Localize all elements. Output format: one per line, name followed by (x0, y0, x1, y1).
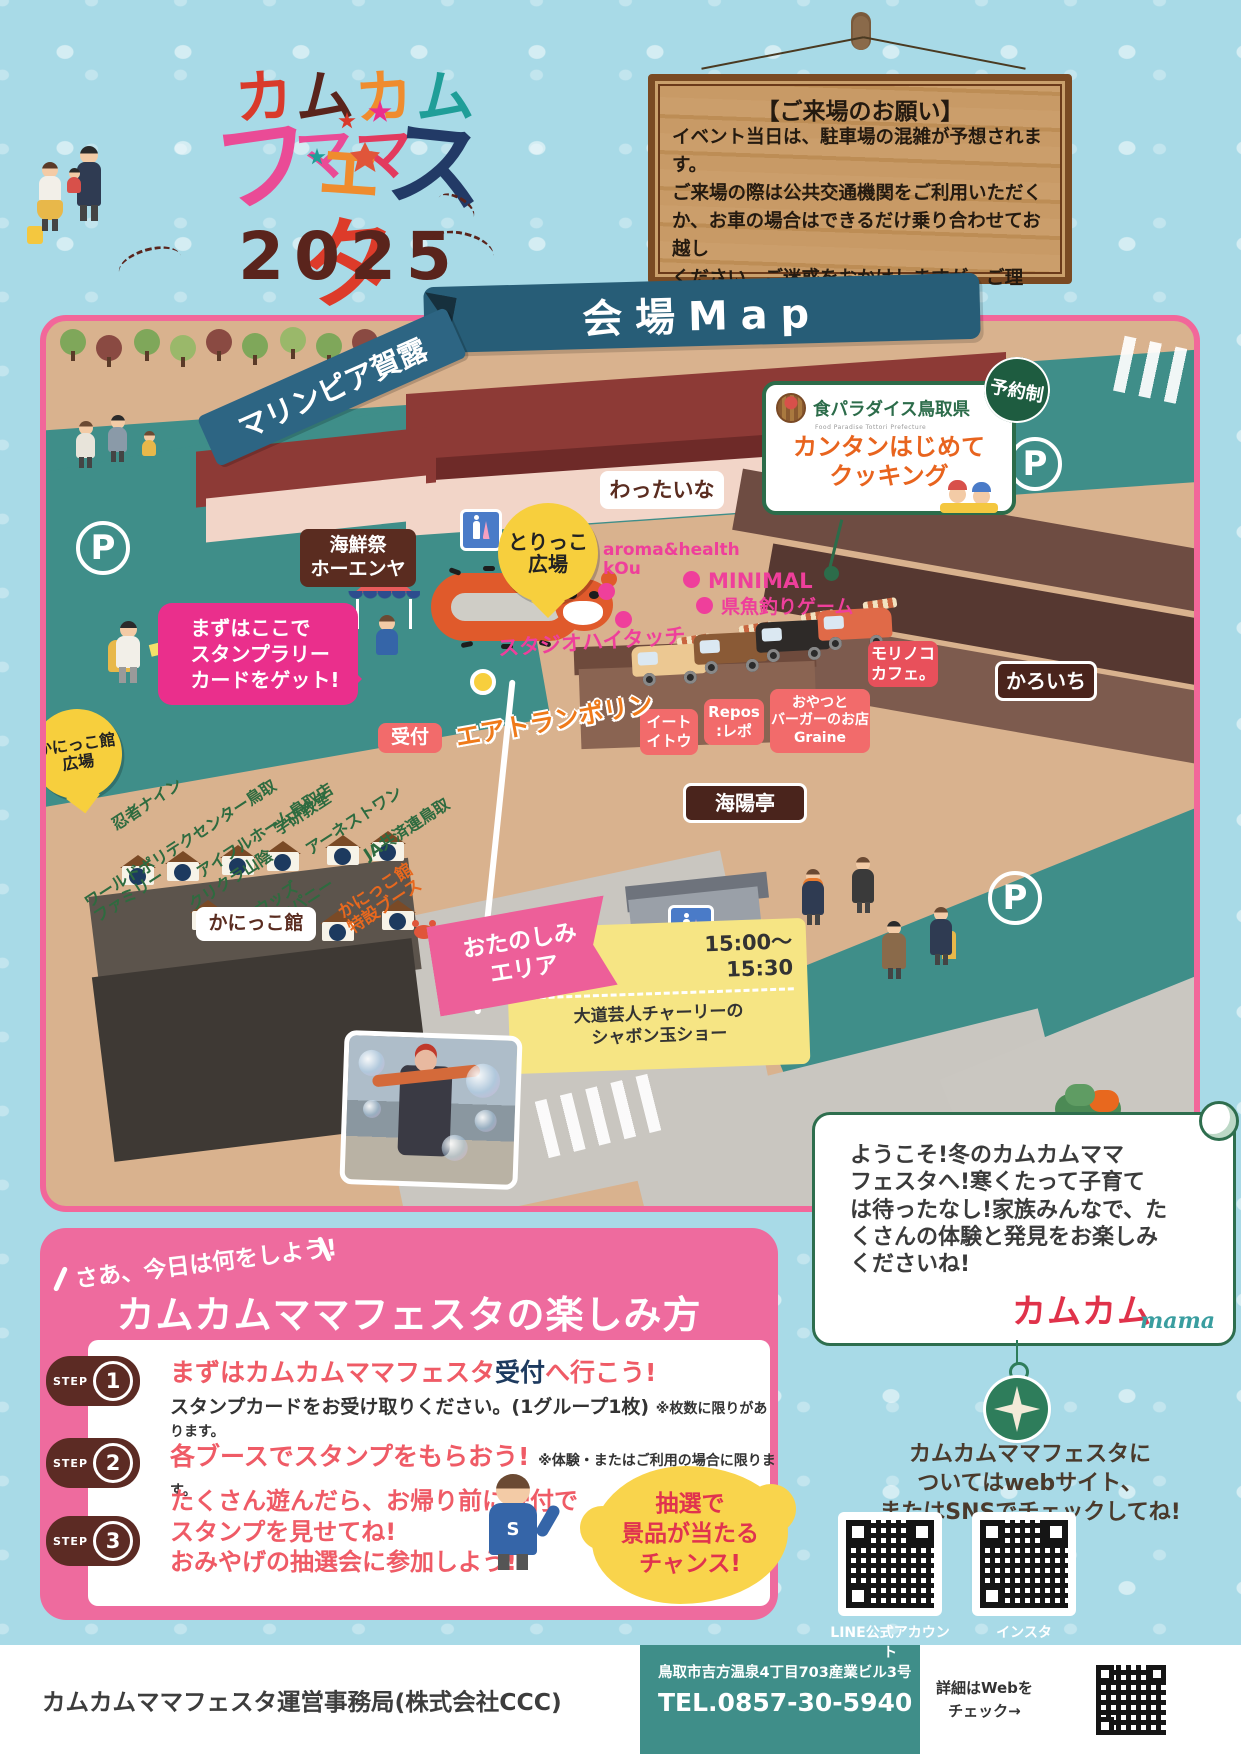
show-title: 大道芸人チャーリーの シャボン玉ショー (522, 998, 795, 1052)
venue-dot (598, 583, 615, 600)
line-qr-code (838, 1512, 942, 1616)
notice-title: 【ご来場のお願い】 (660, 92, 1060, 126)
kid-illustration (949, 486, 966, 503)
karoichi-label: かろいち (995, 661, 1097, 701)
kanikko-kan-label: かにっこ館 (196, 907, 316, 941)
girl-illustration: S (478, 1474, 548, 1594)
venue-dot (683, 571, 700, 588)
person-illustration (108, 415, 127, 462)
parking-icon: P (988, 871, 1042, 925)
howto-section: さあ、今日は何をしよう! カムカムママフェスタの楽しみ方 STEP1 まずはカム… (40, 1228, 778, 1620)
string-decoration (701, 36, 863, 69)
kaiyotei-label: 海陽亭 (683, 783, 807, 823)
morinoko-cafe-label: モリノコ カフェ。 (868, 641, 938, 687)
step-1-desc: スタンプカードをお受け取りください。(1グループ1枚) ※枚数に限りがあります。 (170, 1392, 778, 1441)
person-illustration (882, 921, 906, 979)
howto-title: カムカムママフェスタの楽しみ方 (40, 1284, 778, 1339)
instagram-qr-label: インスタ (972, 1622, 1076, 1642)
cooking-event-card: 食パラダイス鳥取県 Food Paradise Tottori Prefectu… (762, 381, 1016, 515)
nail-icon (853, 16, 869, 50)
step-1-badge: STEP1 (46, 1356, 140, 1406)
step-2-badge: STEP2 (46, 1438, 140, 1488)
ornament-string (1016, 1340, 1018, 1364)
fishing-game-label: 県魚釣りゲーム (721, 597, 853, 618)
person-illustration (802, 869, 824, 925)
person-illustration (76, 421, 95, 468)
stamp-rally-bubble: まずはここで スタンプラリー カードをゲット! (158, 603, 358, 705)
tree-icon (134, 329, 160, 355)
parking-icon: P (76, 521, 130, 575)
step-3-badge: STEP3 (46, 1516, 140, 1566)
cooking-brand: 食パラダイス鳥取県 (813, 396, 970, 421)
welcome-message: ようこそ!冬のカムカムママ フェスタへ!寒くたって子育て は待ったなし!家族みん… (850, 1142, 1220, 1278)
boy-illustration (116, 621, 140, 683)
footer-address: 鳥取市吉方温泉4丁目703産業ビル3号 (658, 1661, 920, 1682)
person-illustration (930, 907, 952, 965)
event-poster: カムカムママ フェスタ 2025 【ご来場のお願い】 イベント当日は、駐 (0, 0, 1241, 1754)
family-illustration (15, 140, 165, 300)
kamukamu-mama-logo: カムカム mama (1012, 1284, 1152, 1333)
tree-icon (242, 333, 268, 359)
tree-icon (280, 327, 306, 353)
reception-label: 受付 (378, 723, 442, 753)
tree-icon (206, 329, 232, 355)
graine-label: おやつと バーガーのお店 Graine (770, 689, 870, 753)
repos-label: Repos :レポ (704, 699, 764, 745)
kaisensai-label: 海鮮祭 ホーエンヤ (300, 529, 416, 587)
footer-tel: TEL.0857-30-5940 (658, 1688, 920, 1717)
route-dot (470, 669, 496, 695)
bubble-show-photo (339, 1030, 522, 1190)
string-decoration (863, 36, 1025, 69)
footer-organizer: カムカムママフェスタ運営事務局(株式会社CCC) (42, 1645, 562, 1754)
receptionist-illustration (376, 615, 398, 655)
footer-qr-code (1088, 1657, 1174, 1743)
cooking-title: カンタンはじめて クッキング (776, 433, 1002, 491)
toilet-icon (460, 509, 502, 551)
tree-icon (96, 335, 122, 361)
torikko-hiroba-pin: とりっこ 広場 (498, 503, 598, 603)
cooking-counter (940, 503, 998, 513)
parking-icon: P (1008, 437, 1062, 491)
minimal-label: MINIMAL (708, 570, 813, 593)
wattaina-label: わったいな (600, 471, 724, 509)
venue-dot (615, 611, 632, 628)
tree-icon (170, 335, 196, 361)
tree-icon (60, 329, 86, 355)
person-illustration (142, 431, 156, 456)
cooking-dot (824, 566, 839, 581)
line-qr-label: LINE公式アカウント (826, 1622, 954, 1662)
footer: カムカムママフェスタ運営事務局(株式会社CCC) 鳥取市吉方温泉4丁目703産業… (0, 1645, 1241, 1754)
cooking-brand-sub: Food Paradise Tottori Prefecture (815, 424, 1002, 431)
venue-dot (696, 597, 713, 614)
food-bowl-icon (776, 393, 806, 423)
person-illustration (852, 857, 874, 913)
compass-ornament-icon (986, 1378, 1048, 1440)
step-1-title: まずはカムカムママフェスタ受付へ行こう! (170, 1358, 656, 1388)
instagram-qr-code (972, 1512, 1076, 1616)
